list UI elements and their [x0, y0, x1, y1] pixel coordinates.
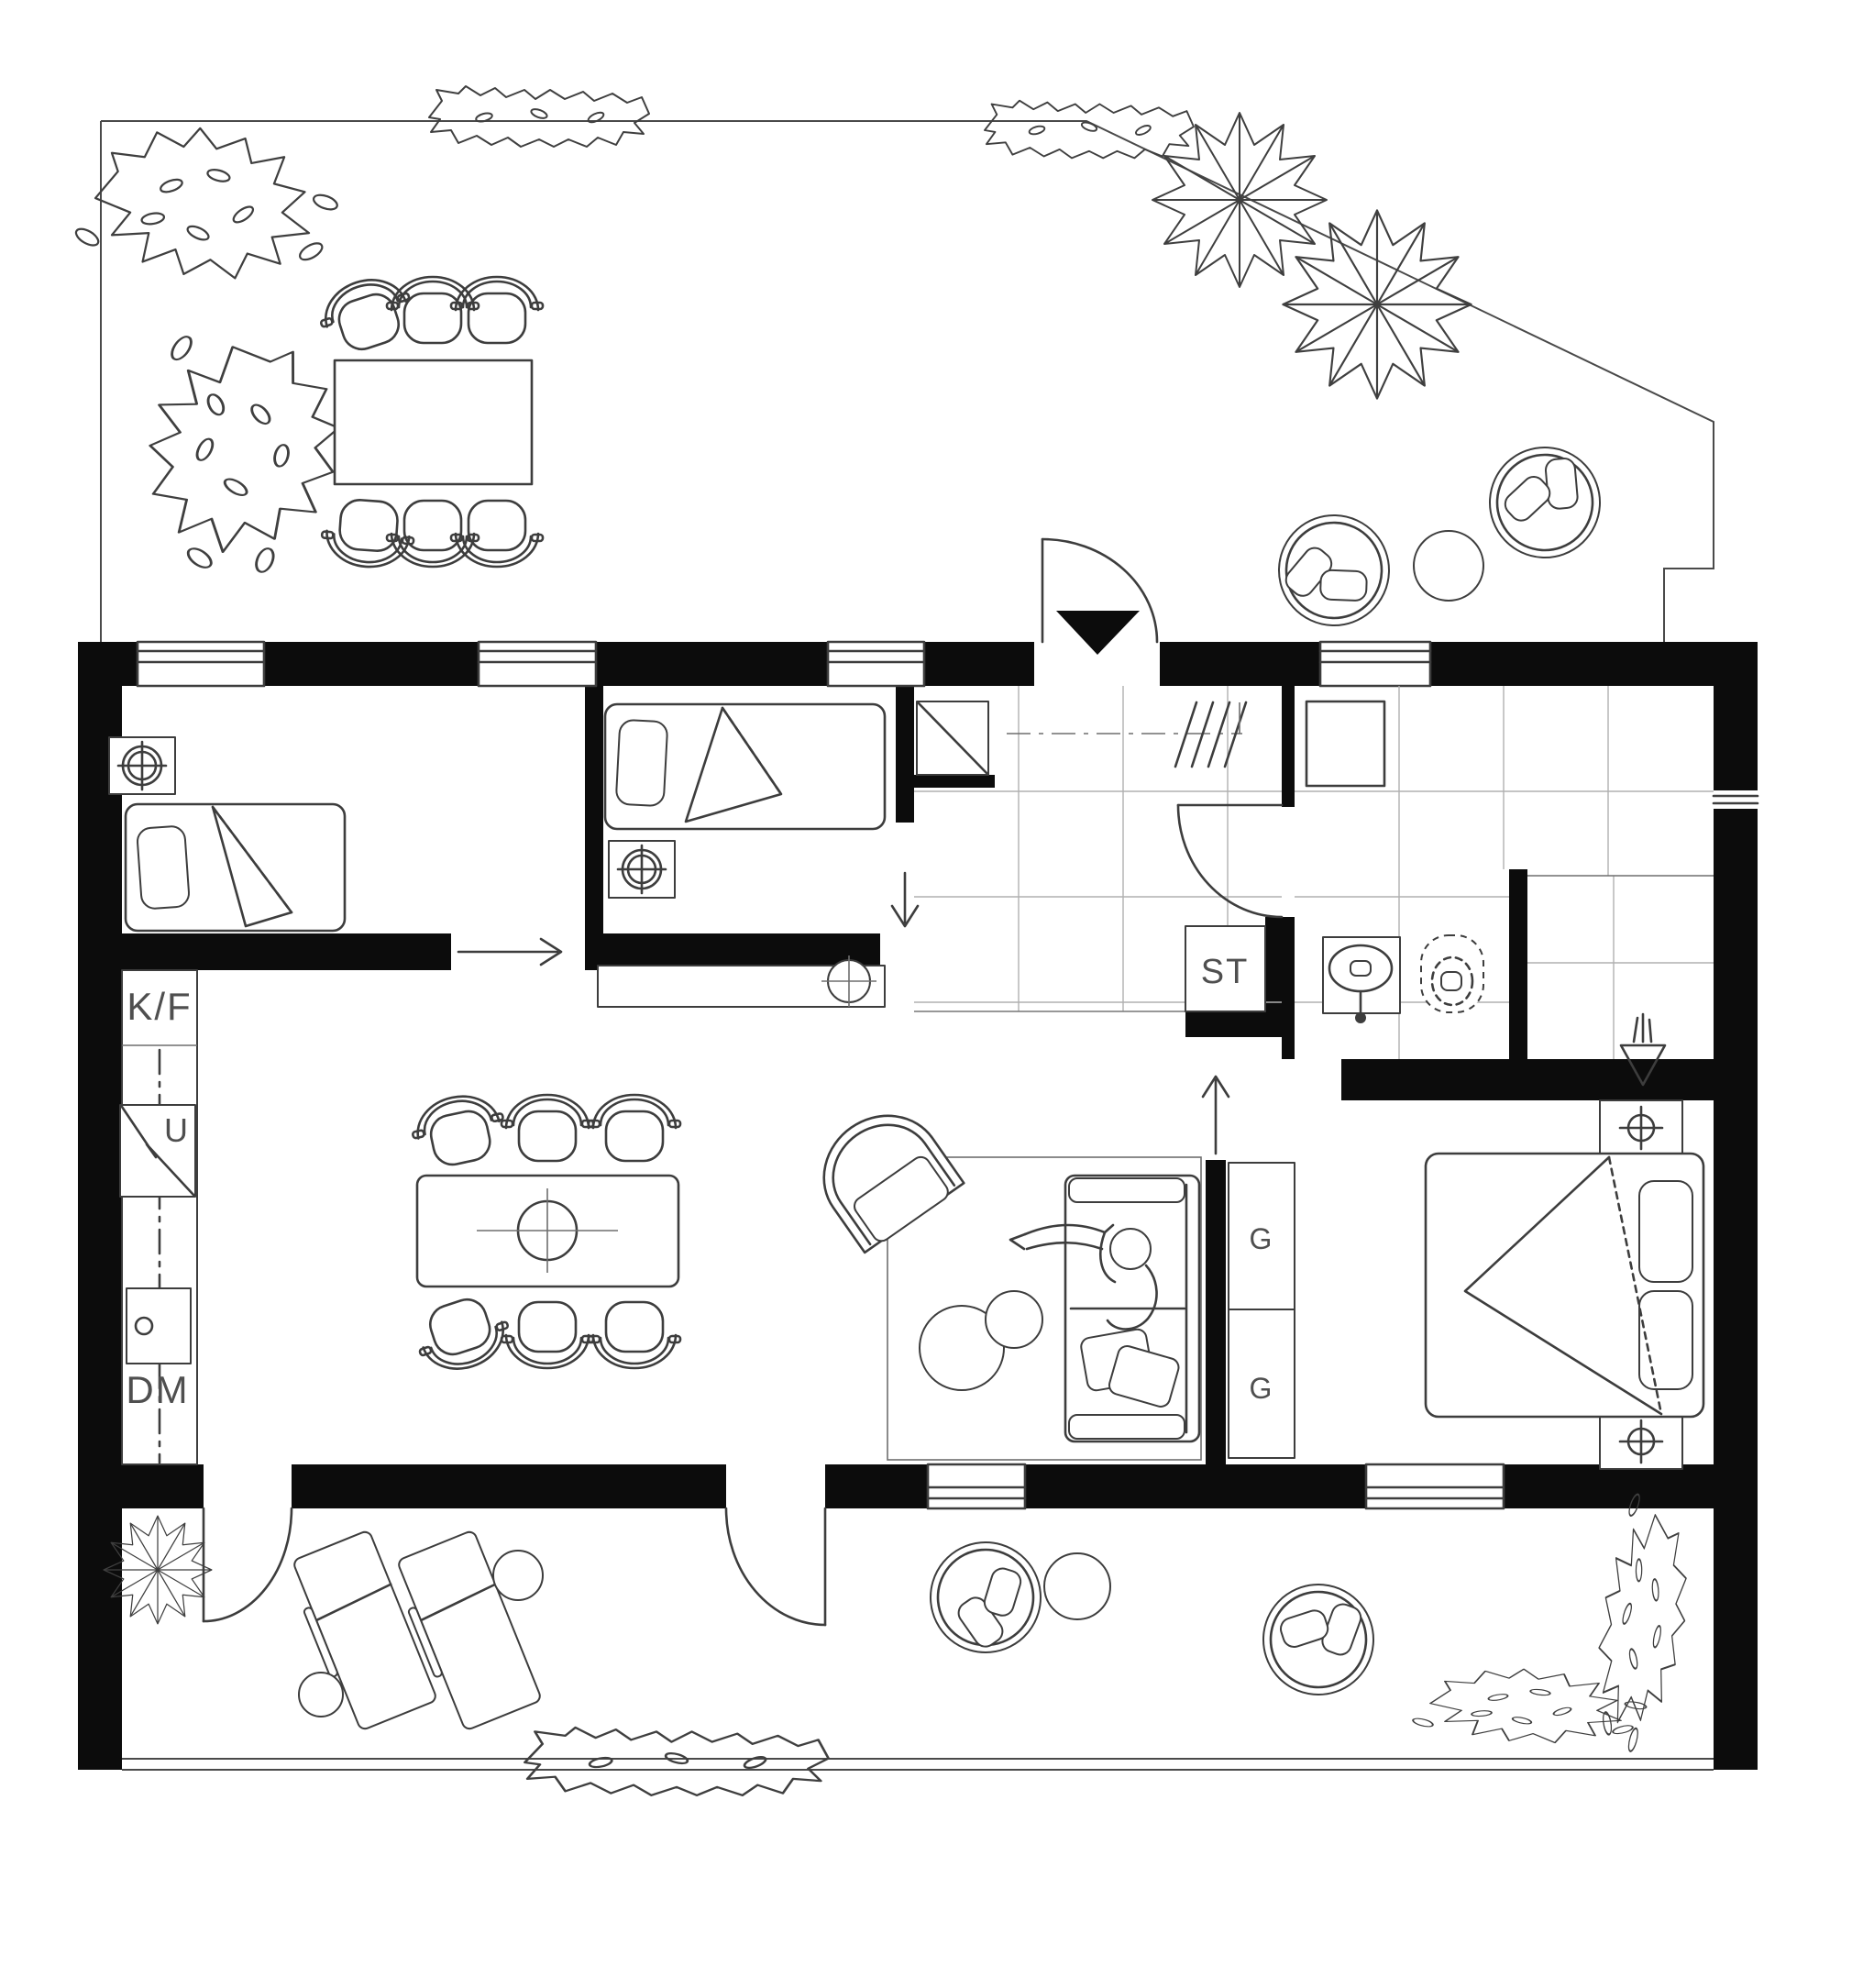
- wardrobe-cabinet: G: [1229, 1163, 1295, 1309]
- wardrobe-label: G: [1250, 1222, 1274, 1255]
- wall-east: [1714, 642, 1758, 1770]
- side-table: [1414, 531, 1483, 601]
- vine-icon: [1411, 1669, 1648, 1742]
- round-lounge-chair: [1263, 500, 1405, 641]
- hall-closet: [917, 701, 988, 775]
- wall-hall-west: [896, 686, 914, 823]
- round-lounge-chair: [1472, 429, 1617, 575]
- floor-plan-canvas: ST: [0, 0, 1874, 1988]
- hedge-icon: [524, 1728, 828, 1795]
- window: [828, 642, 924, 686]
- storage-closet: ST: [1185, 926, 1265, 1011]
- patio-door: [726, 1464, 825, 1625]
- round-lounge-chair: [1240, 1562, 1395, 1717]
- fridge-freezer-label: K/F: [127, 985, 192, 1028]
- dining-chair: [409, 1289, 516, 1380]
- wall-bedroom1-south: [78, 933, 451, 970]
- hedge-icon: [985, 101, 1194, 159]
- tree-icon: [73, 128, 339, 279]
- patio: [104, 1489, 1714, 1795]
- wall-west: [78, 642, 122, 1770]
- kitchen-sink: [127, 1288, 191, 1364]
- floor-plan-page: ST: [0, 0, 1874, 1988]
- side-table: [1044, 1553, 1110, 1619]
- oven: U: [120, 1105, 195, 1197]
- pillow: [1639, 1291, 1692, 1389]
- side-table: [299, 1673, 343, 1717]
- wall-closet-stub: [914, 775, 995, 788]
- bedroom1: [109, 737, 561, 965]
- side-table: [493, 1551, 543, 1600]
- door-direction-arrow: [458, 939, 561, 965]
- dining-chair: [407, 1088, 511, 1172]
- ceiling-lamp-icon: [609, 841, 675, 898]
- outdoor-dining-set: [313, 269, 543, 570]
- wall-shower-stub: [1509, 869, 1527, 1059]
- wall-bedroom3-west: [1206, 1160, 1226, 1464]
- entry-mat: [1007, 702, 1246, 767]
- wall-bath-partition-upper: [1282, 686, 1295, 807]
- wall-bedroom-divider: [585, 686, 603, 965]
- master-bedroom: G G: [1229, 1100, 1703, 1469]
- outdoor-chair: [451, 277, 543, 343]
- wardrobe-label: G: [1250, 1372, 1274, 1405]
- palm-tree-icon: [1152, 113, 1327, 287]
- top-terrace: [73, 86, 1714, 642]
- outdoor-chair: [387, 277, 479, 343]
- nightstand: [1600, 1414, 1682, 1469]
- sofa: [1065, 1176, 1199, 1441]
- terrace-lounge-group: [1263, 429, 1618, 641]
- vine-icon: [1590, 1489, 1695, 1756]
- dining-area: [407, 1088, 680, 1381]
- wall-st-south: [1185, 1011, 1295, 1037]
- toilet-icon: [1421, 935, 1483, 1012]
- outdoor-chair: [451, 501, 543, 567]
- outdoor-dining-table: [335, 360, 532, 484]
- dishwasher-label: DM: [126, 1368, 189, 1411]
- window: [138, 642, 264, 686]
- window: [479, 642, 596, 686]
- window: [1320, 642, 1430, 686]
- hallway: ST: [914, 686, 1282, 1154]
- entrance-door: [1034, 539, 1160, 688]
- dining-chair: [589, 1302, 680, 1368]
- patio-door: [204, 1464, 292, 1621]
- living-room: [801, 1093, 1201, 1460]
- pillow: [1639, 1181, 1692, 1282]
- oven-label: U: [164, 1111, 190, 1149]
- armchair: [801, 1093, 965, 1254]
- kitchen: K/F U DM: [120, 970, 197, 1464]
- sink-icon: [1323, 937, 1400, 1023]
- pillow: [137, 825, 190, 909]
- coffee-table: [986, 1291, 1042, 1348]
- wall-bath-partition-lower: [1282, 917, 1295, 1059]
- window: [1714, 790, 1758, 809]
- washing-machine: [1306, 701, 1384, 786]
- outdoor-chair: [387, 501, 479, 567]
- ceiling-lamp-icon: [109, 737, 175, 794]
- dining-chair: [589, 1095, 680, 1161]
- tree-icon: [127, 311, 361, 590]
- pillow: [616, 720, 668, 807]
- wall-st-east: [1265, 917, 1284, 1012]
- wall-south: [78, 1464, 1758, 1508]
- window: [928, 1464, 1025, 1508]
- wall-bath-south: [1341, 1059, 1714, 1100]
- round-lounge-chair: [926, 1538, 1045, 1657]
- window: [1366, 1464, 1504, 1508]
- dining-chair: [502, 1302, 593, 1368]
- bathroom-door: [1178, 805, 1282, 917]
- outdoor-chair: [320, 498, 416, 570]
- wardrobe-cabinet: G: [1229, 1309, 1295, 1458]
- door-direction-arrow: [892, 873, 918, 926]
- hedge-icon: [429, 86, 649, 147]
- flow-arrow-up: [1203, 1077, 1229, 1154]
- nightstand: [1600, 1100, 1682, 1155]
- dining-chair: [502, 1095, 593, 1161]
- storage-label: ST: [1201, 953, 1250, 991]
